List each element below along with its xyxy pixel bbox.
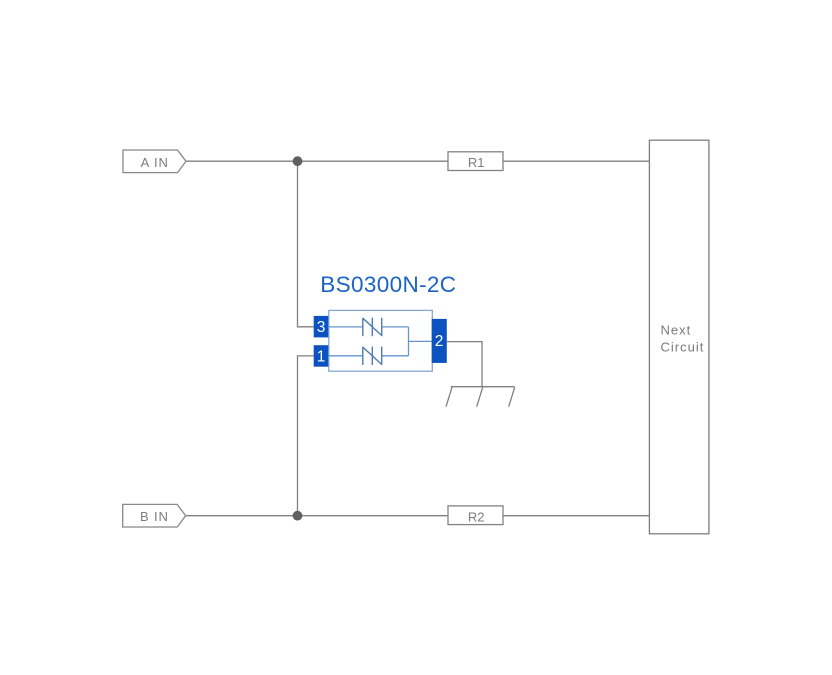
svg-text:A IN: A IN	[141, 155, 169, 170]
svg-text:1: 1	[317, 348, 326, 365]
svg-text:B IN: B IN	[140, 509, 169, 524]
svg-text:BS0300N-2C: BS0300N-2C	[320, 272, 456, 297]
svg-text:R2: R2	[468, 509, 485, 524]
svg-text:Next: Next	[661, 322, 692, 337]
svg-text:2: 2	[435, 333, 444, 350]
svg-text:3: 3	[317, 319, 326, 336]
svg-text:Circuit: Circuit	[661, 339, 705, 354]
svg-text:R1: R1	[468, 155, 485, 170]
